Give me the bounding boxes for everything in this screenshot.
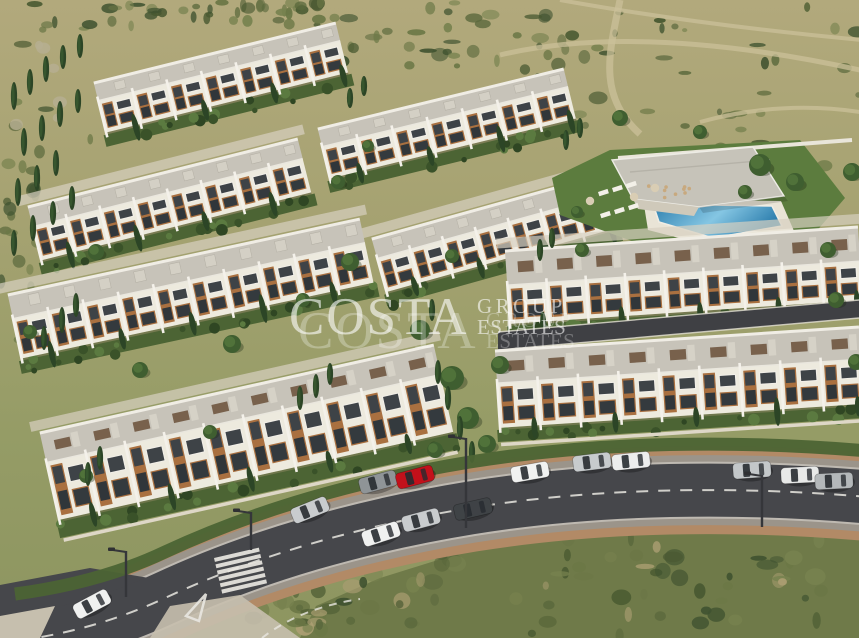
parasol xyxy=(586,197,594,205)
parasol xyxy=(651,184,659,192)
scene-canvas xyxy=(0,0,859,638)
development-aerial-view: COSTA GROUP ESTATES COSTA GROUP ESTATES xyxy=(0,0,859,638)
parasol xyxy=(630,193,638,201)
